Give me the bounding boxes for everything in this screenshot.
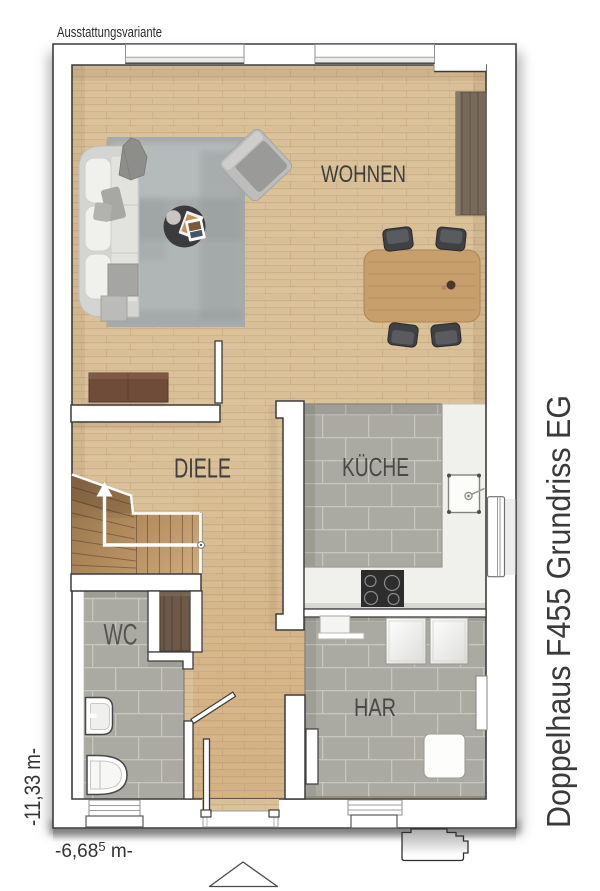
svg-text:-11,33 m-: -11,33 m-: [20, 748, 45, 826]
svg-text:KÜCHE: KÜCHE: [342, 452, 409, 482]
svg-text:-6,685 m-: -6,685 m-: [55, 839, 133, 862]
svg-text:HAR: HAR: [354, 694, 396, 722]
svg-text:Doppelhaus F455 Grundriss EG: Doppelhaus F455 Grundriss EG: [540, 395, 577, 828]
svg-text:Ausstattungsvariante: Ausstattungsvariante: [57, 24, 162, 41]
svg-text:WC: WC: [104, 619, 138, 652]
svg-text:DIELE: DIELE: [174, 453, 231, 484]
svg-text:WOHNEN: WOHNEN: [321, 161, 406, 188]
